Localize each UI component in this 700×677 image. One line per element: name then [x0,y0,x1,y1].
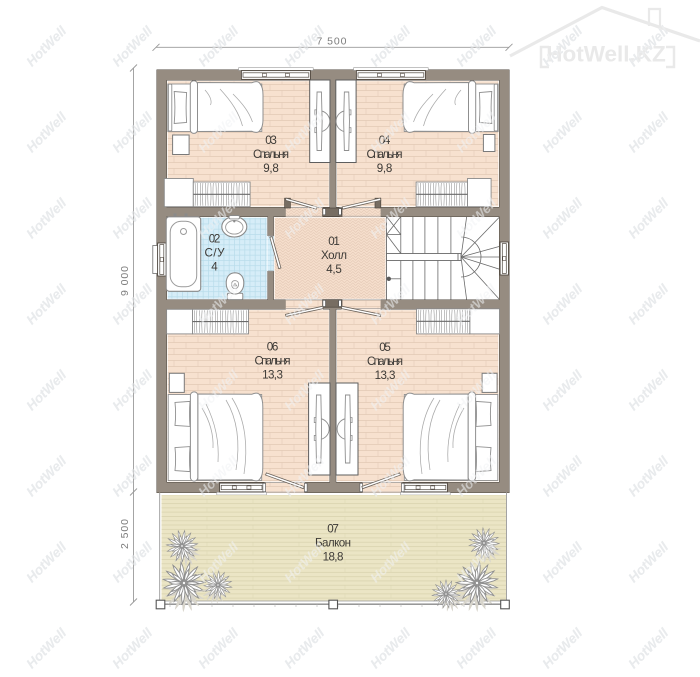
svg-text:01: 01 [328,235,340,248]
svg-text:Спальня: Спальня [253,148,289,161]
svg-text:Спальня: Спальня [367,355,403,368]
svg-text:Спальня: Спальня [255,355,291,368]
svg-text:9,8: 9,8 [263,162,279,175]
svg-text:13,3: 13,3 [262,368,283,381]
svg-text:07: 07 [327,523,339,536]
svg-text:4: 4 [211,260,218,273]
svg-text:2 500: 2 500 [119,519,131,549]
svg-text:4,5: 4,5 [326,263,342,276]
svg-text:9,8: 9,8 [377,162,393,175]
svg-text:03: 03 [265,134,277,147]
svg-text:Холл: Холл [321,249,347,262]
svg-text:05: 05 [379,341,391,354]
svg-text:18,8: 18,8 [323,550,344,563]
svg-text:С/У: С/У [205,247,226,260]
svg-text:06: 06 [267,341,279,354]
svg-text:9 000: 9 000 [119,266,131,296]
